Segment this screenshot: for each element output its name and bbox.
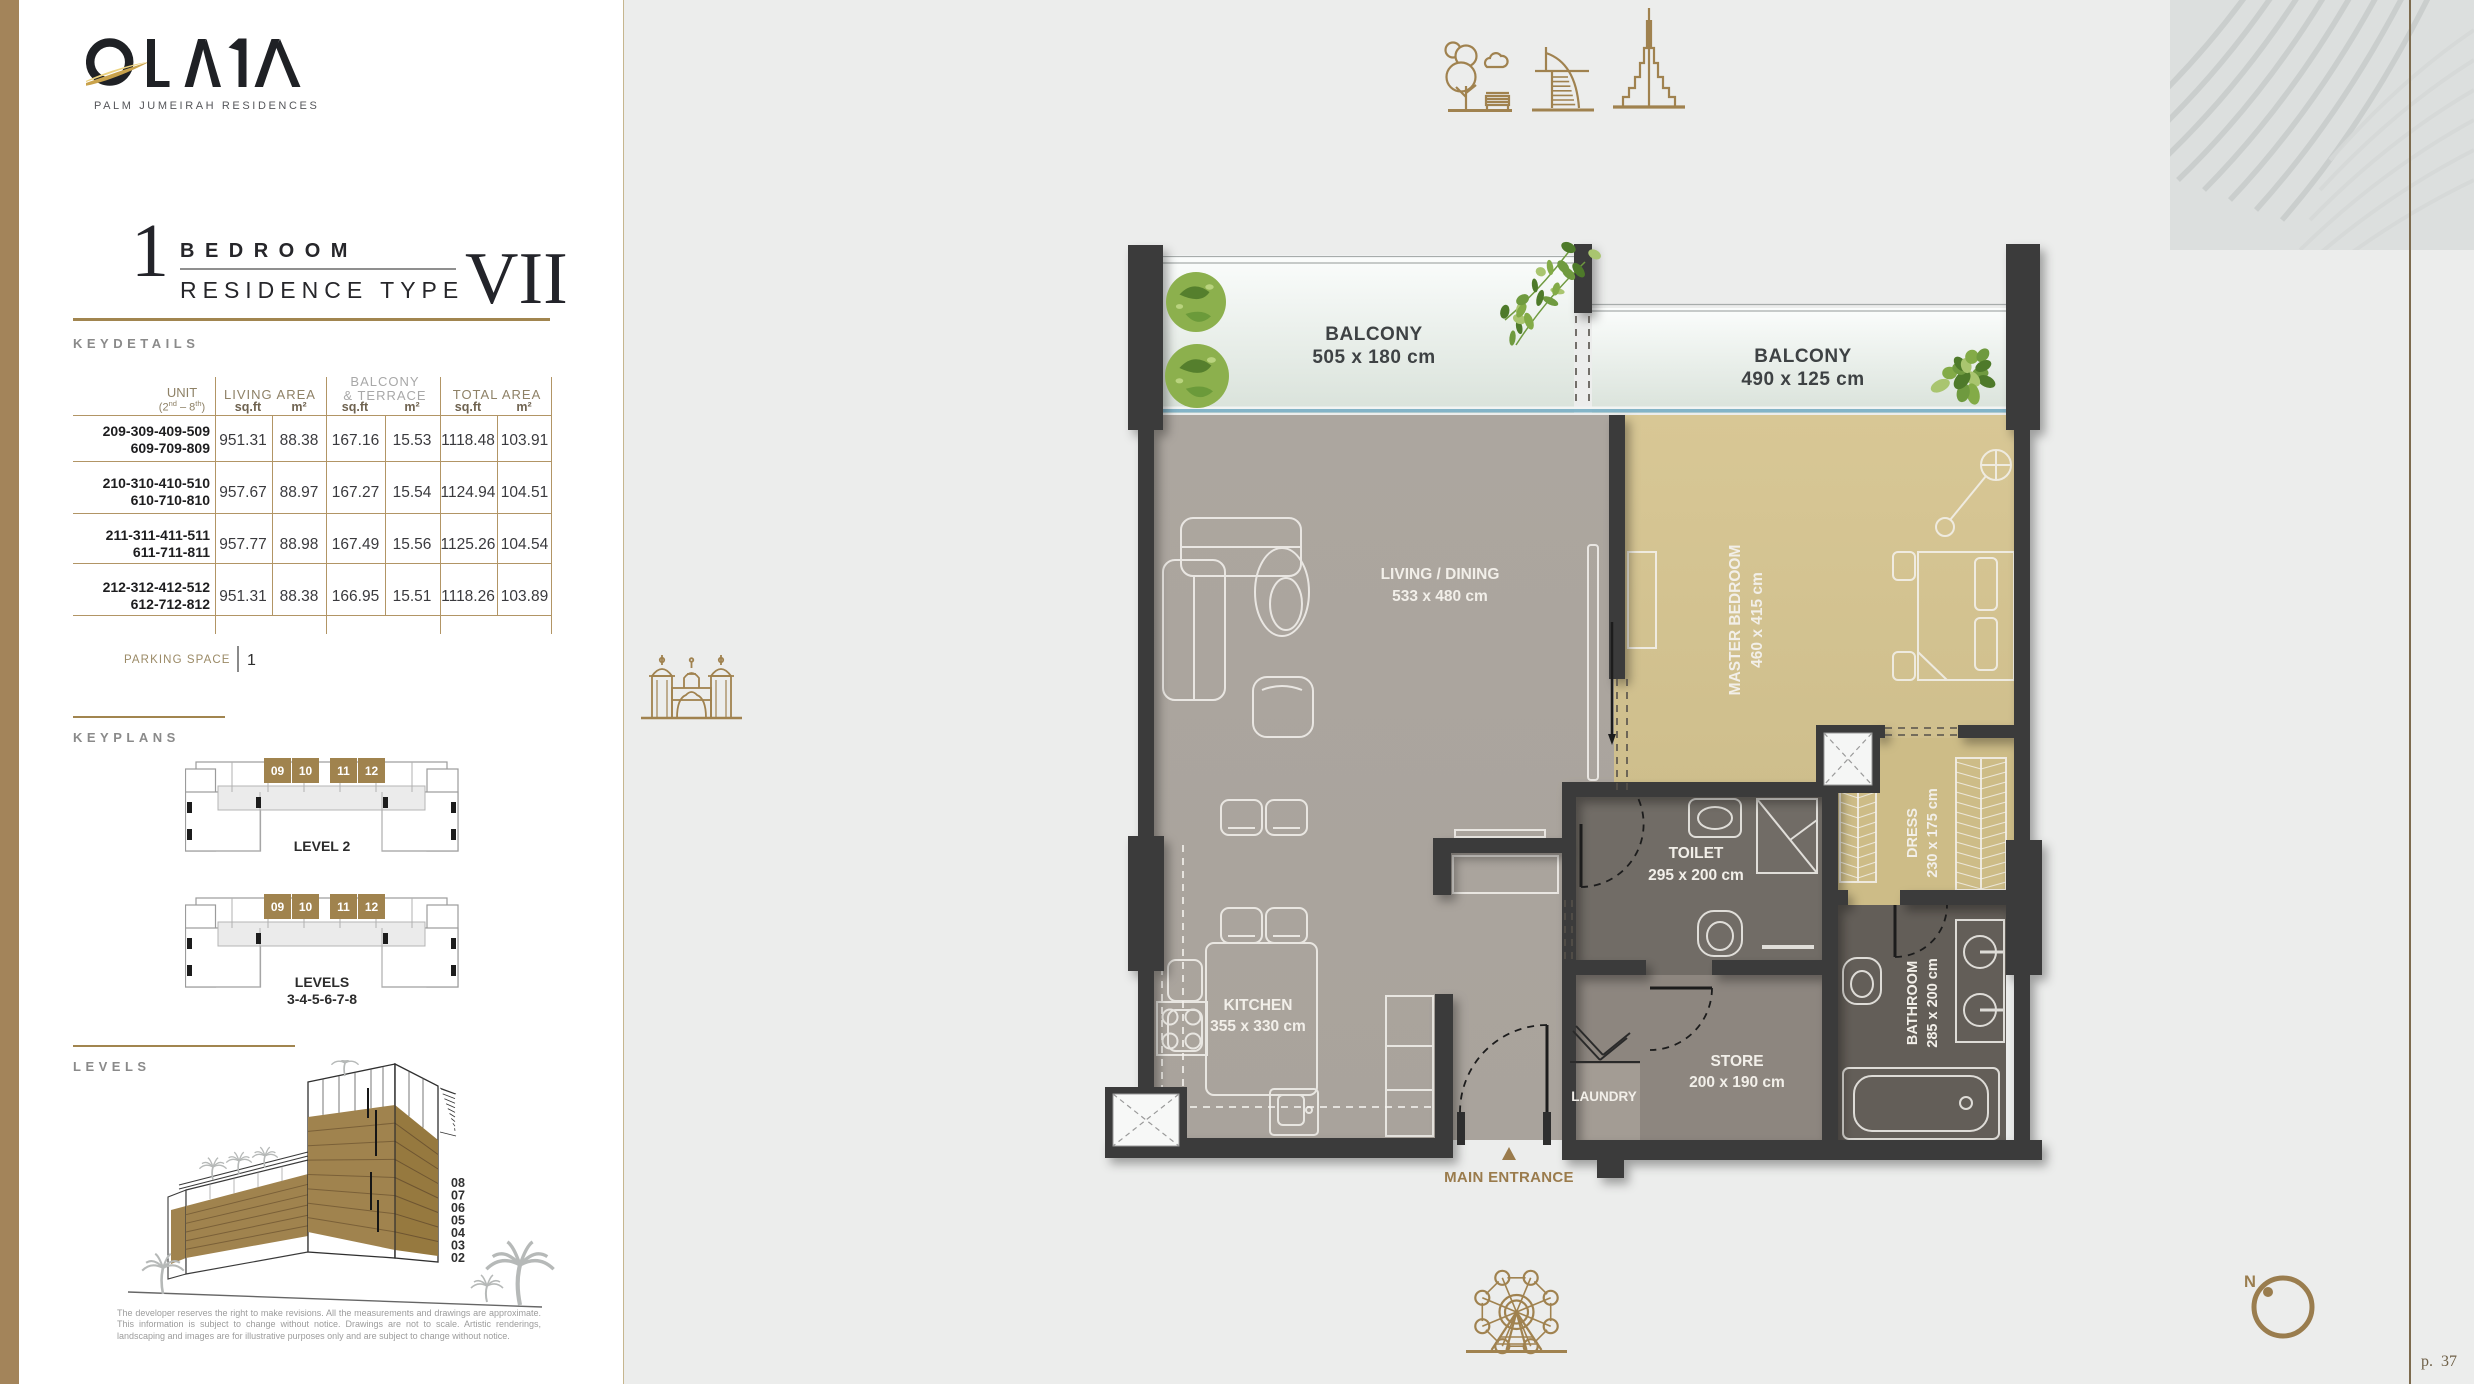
svg-text:STORE: STORE xyxy=(1710,1053,1763,1070)
svg-text:LIVING / DINING: LIVING / DINING xyxy=(1381,566,1500,583)
svg-text:200 x 190 cm: 200 x 190 cm xyxy=(1689,1074,1785,1091)
svg-text:DRESS: DRESS xyxy=(1905,808,1921,858)
svg-text:295 x 200 cm: 295 x 200 cm xyxy=(1648,867,1744,884)
svg-text:460 x 415 cm: 460 x 415 cm xyxy=(1749,572,1766,668)
svg-text:490 x 125 cm: 490 x 125 cm xyxy=(1741,369,1864,390)
svg-text:355 x 330 cm: 355 x 330 cm xyxy=(1210,1018,1306,1035)
svg-text:BALCONY: BALCONY xyxy=(1754,346,1851,367)
svg-text:MASTER BEDROOM: MASTER BEDROOM xyxy=(1727,545,1744,696)
svg-text:KITCHEN: KITCHEN xyxy=(1224,997,1293,1014)
svg-text:TOILET: TOILET xyxy=(1669,845,1724,862)
svg-text:230 x 175 cm: 230 x 175 cm xyxy=(1925,788,1941,878)
svg-text:505 x 180 cm: 505 x 180 cm xyxy=(1312,347,1435,368)
svg-text:MAIN ENTRANCE: MAIN ENTRANCE xyxy=(1444,1169,1574,1186)
svg-text:BALCONY: BALCONY xyxy=(1325,324,1422,345)
svg-text:p. 37: p. 37 xyxy=(2421,1353,2457,1370)
svg-text:533 x 480 cm: 533 x 480 cm xyxy=(1392,588,1488,605)
svg-text:N: N xyxy=(2244,1273,2256,1291)
svg-text:BATHROOM: BATHROOM xyxy=(1905,961,1921,1045)
svg-text:285 x 200 cm: 285 x 200 cm xyxy=(1925,958,1941,1048)
svg-text:LAUNDRY: LAUNDRY xyxy=(1571,1089,1637,1104)
